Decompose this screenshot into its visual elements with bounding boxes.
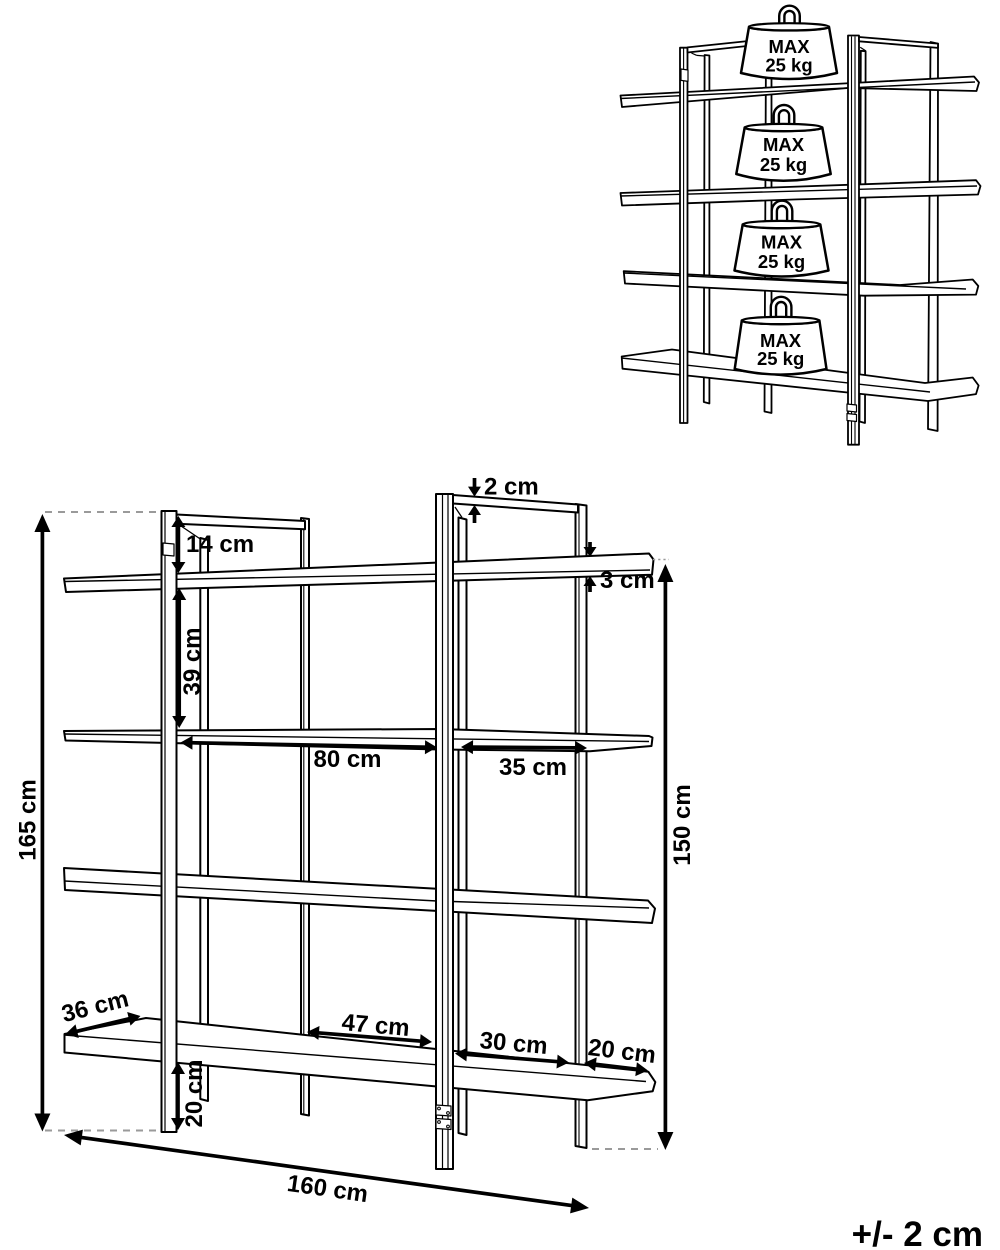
svg-text:39 cm: 39 cm: [179, 627, 206, 695]
svg-text:2 cm: 2 cm: [484, 474, 539, 501]
svg-text:MAX: MAX: [761, 232, 803, 253]
svg-text:165 cm: 165 cm: [14, 779, 41, 860]
svg-text:25 kg: 25 kg: [765, 54, 812, 75]
svg-text:150 cm: 150 cm: [669, 784, 696, 865]
svg-text:25 kg: 25 kg: [758, 251, 805, 272]
svg-text:35 cm: 35 cm: [499, 754, 567, 781]
svg-text:20 cm: 20 cm: [181, 1059, 208, 1127]
svg-text:+/- 2 cm: +/- 2 cm: [852, 1215, 983, 1250]
svg-text:80 cm: 80 cm: [313, 746, 381, 773]
svg-text:14 cm: 14 cm: [186, 531, 254, 558]
svg-text:25 kg: 25 kg: [757, 348, 804, 369]
svg-text:25 kg: 25 kg: [760, 154, 807, 175]
svg-text:3 cm: 3 cm: [600, 567, 655, 594]
svg-text:MAX: MAX: [763, 134, 805, 155]
